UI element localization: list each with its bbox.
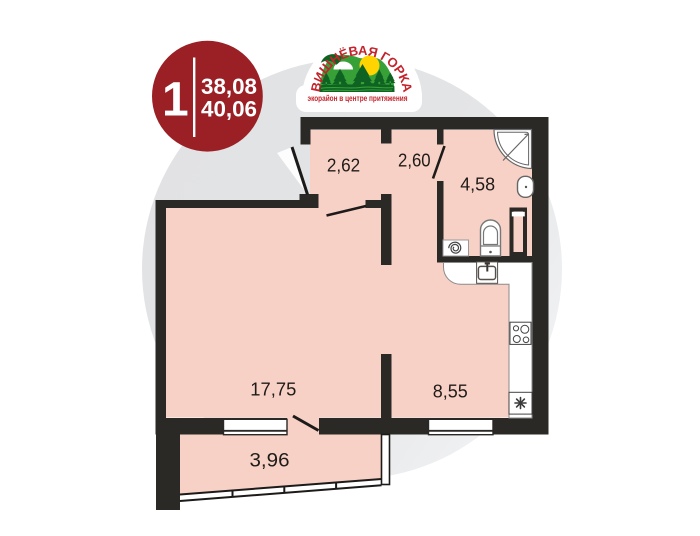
svg-text:экорайон в центре притяжения: экорайон в центре притяжения [308, 94, 408, 103]
svg-text:8,55: 8,55 [433, 381, 468, 402]
svg-text:4,58: 4,58 [460, 174, 495, 195]
svg-text:3,96: 3,96 [250, 450, 290, 472]
svg-text:17,75: 17,75 [250, 379, 296, 400]
svg-text:40,06: 40,06 [201, 97, 257, 122]
svg-text:2,62: 2,62 [327, 155, 360, 176]
svg-text:1: 1 [162, 73, 189, 126]
svg-text:2,60: 2,60 [398, 150, 431, 171]
svg-text:38,08: 38,08 [201, 74, 257, 99]
